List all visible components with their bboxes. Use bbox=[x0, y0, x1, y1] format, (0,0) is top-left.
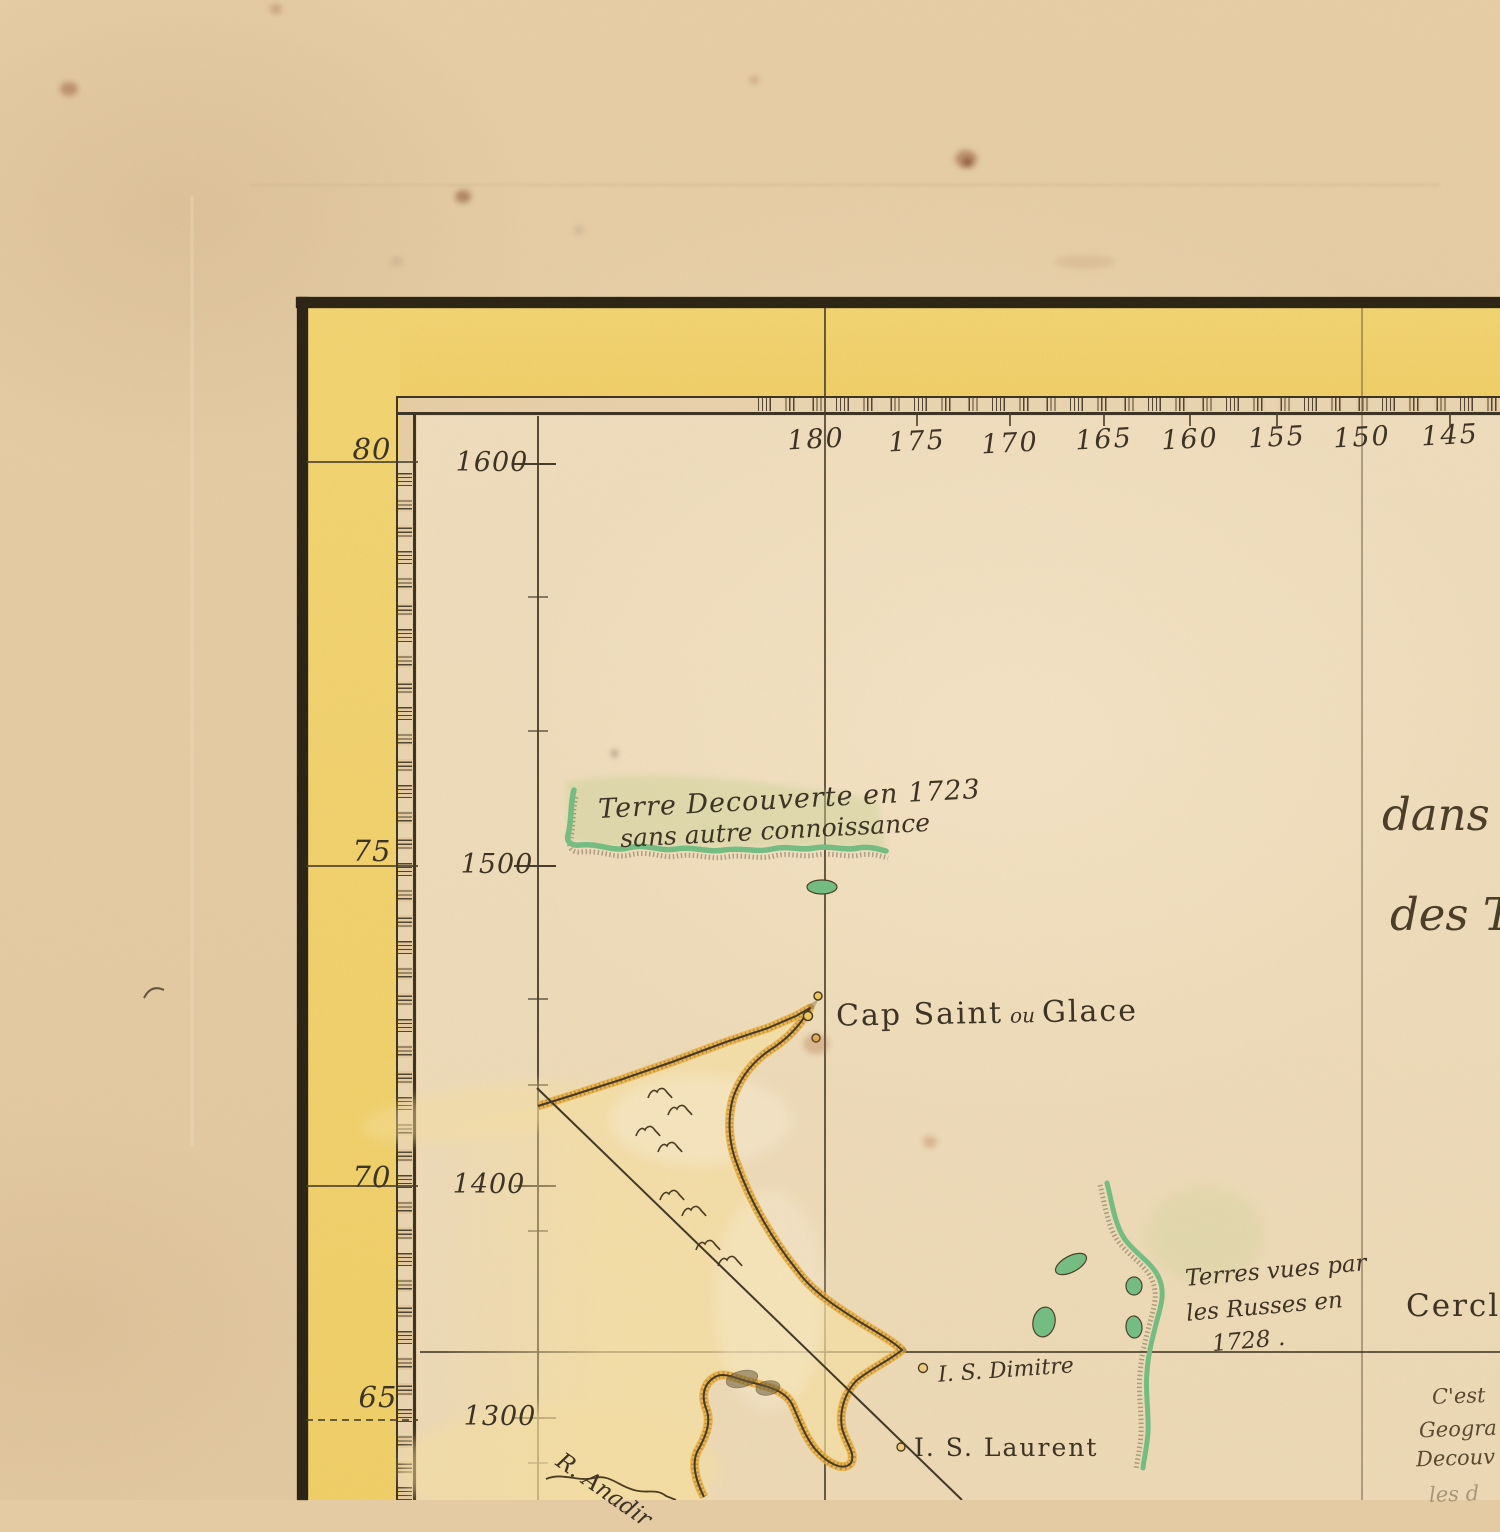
paper-stain bbox=[574, 226, 584, 234]
longitude-label: 145 bbox=[1420, 419, 1479, 453]
paper-stain bbox=[963, 158, 972, 166]
latitude-label: 80 bbox=[353, 432, 392, 466]
paper-stain bbox=[1055, 255, 1115, 269]
map-sheet: { "frame": { "longitude_labels": ["180",… bbox=[0, 0, 1500, 1500]
parallel-stubs bbox=[306, 462, 418, 1420]
latitude-label: 65 bbox=[359, 1380, 398, 1414]
margin-pen-mark bbox=[144, 988, 164, 998]
paper-stain bbox=[60, 82, 78, 96]
cape-saint-label-alt: Glace bbox=[1042, 993, 1139, 1030]
island-laurent-label: I. S. Laurent bbox=[914, 1433, 1098, 1462]
title-fragment-line2: des Te bbox=[1390, 888, 1500, 941]
paper-stain bbox=[749, 76, 759, 84]
island-dimitre-islet bbox=[919, 1364, 928, 1373]
paper-stain bbox=[390, 257, 404, 266]
cape-saint-label: Cap Saint ou Glace bbox=[836, 993, 1139, 1033]
scale-label: 1500 bbox=[461, 849, 534, 880]
note-fragment-line3: Decouv bbox=[1416, 1445, 1496, 1472]
paper-stain bbox=[270, 4, 282, 14]
paper-stain bbox=[455, 190, 471, 203]
arctic-circle-label: Cercle bbox=[1406, 1288, 1500, 1324]
russes-islands bbox=[1030, 1249, 1143, 1339]
paper-stain bbox=[923, 1136, 937, 1148]
longitude-label: 165 bbox=[1074, 423, 1133, 457]
scale-label: 1300 bbox=[464, 1401, 537, 1432]
cape-saint-label-connector: ou bbox=[1003, 1003, 1042, 1028]
note-fragment-line4: les d bbox=[1429, 1481, 1480, 1507]
longitude-label: 170 bbox=[980, 427, 1039, 461]
scale-label: 1600 bbox=[456, 447, 529, 478]
latitude-label: 70 bbox=[353, 1160, 392, 1194]
longitude-label: 180 bbox=[786, 423, 845, 457]
cape-saint-label-main: Cap Saint bbox=[836, 996, 1004, 1034]
paper-stain bbox=[803, 1034, 829, 1054]
note-fragment-line1: C'est bbox=[1432, 1383, 1486, 1409]
latitude-label: 75 bbox=[353, 834, 392, 868]
discovery-island bbox=[807, 880, 837, 894]
longitude-label: 175 bbox=[887, 425, 946, 459]
longitude-label: 160 bbox=[1160, 423, 1219, 457]
note-fragment-line2: Geogra bbox=[1419, 1416, 1498, 1443]
paper-stain bbox=[611, 750, 618, 757]
title-fragment-line1: dans bbox=[1382, 788, 1490, 841]
scale-label: 1400 bbox=[453, 1169, 526, 1200]
longitude-label: 150 bbox=[1332, 421, 1391, 455]
longitude-label: 155 bbox=[1247, 421, 1306, 455]
